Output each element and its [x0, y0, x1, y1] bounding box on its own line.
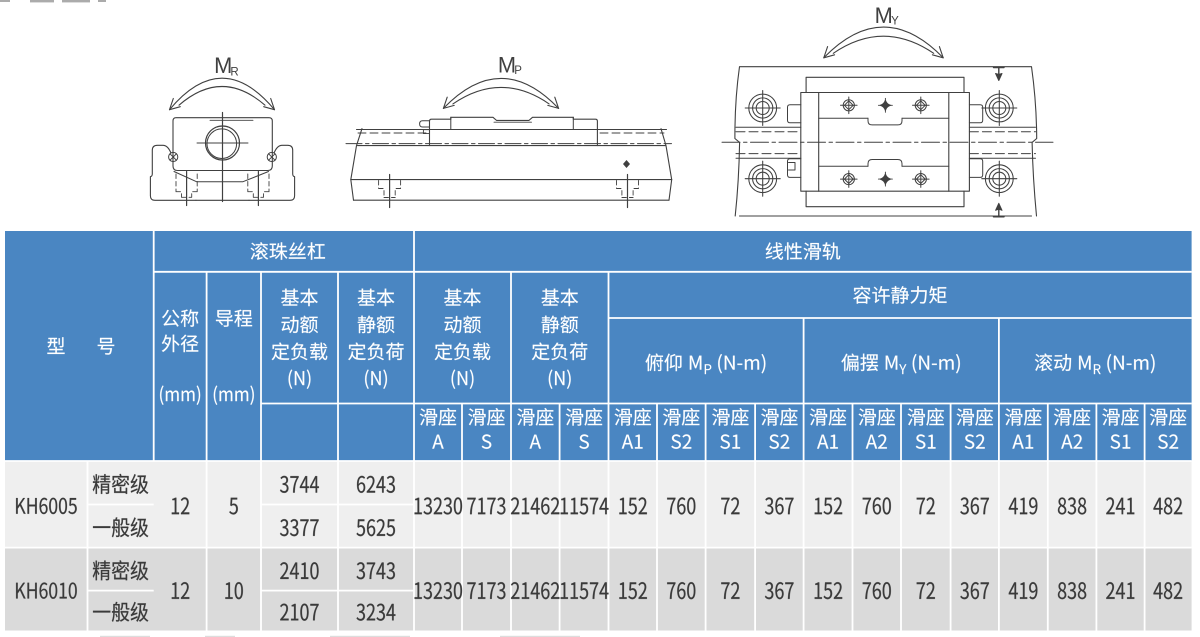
svg-text:Y: Y [891, 16, 899, 28]
svg-text:P: P [514, 65, 522, 77]
svg-text:R: R [230, 66, 238, 78]
svg-text:M: M [875, 3, 893, 28]
